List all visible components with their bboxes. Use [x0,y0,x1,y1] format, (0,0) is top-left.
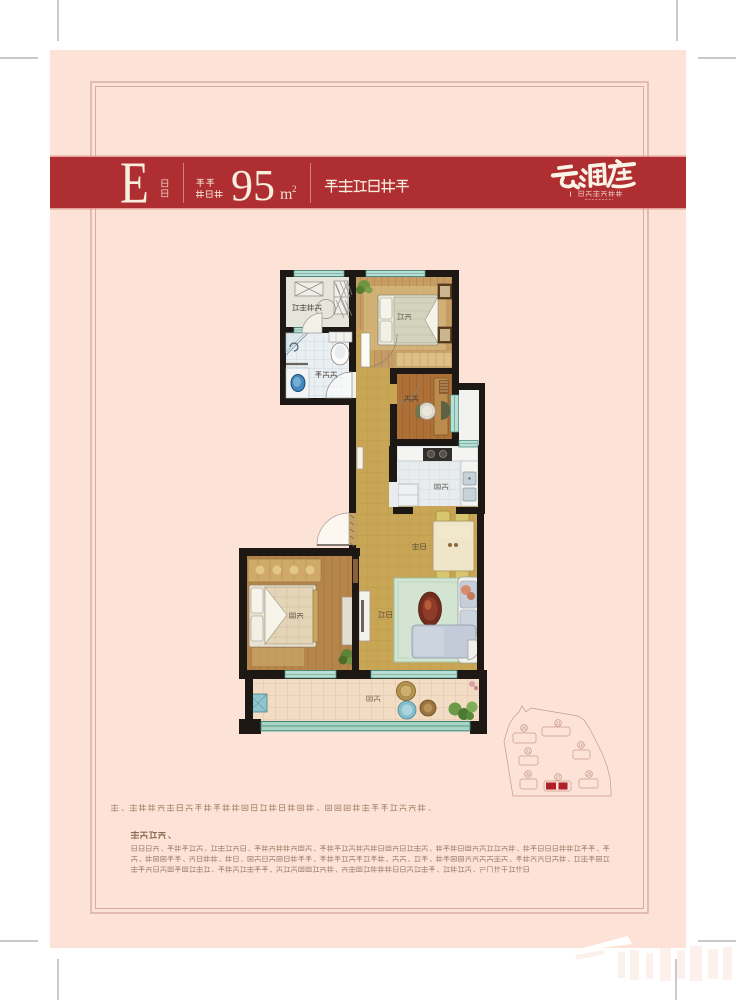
svg-text:E: E [120,149,149,215]
svg-text:95: 95 [231,161,275,210]
svg-text:27: 27 [555,775,561,780]
svg-text:31: 31 [525,749,531,754]
svg-text:32: 32 [525,772,531,777]
svg-text:2: 2 [292,184,297,194]
svg-text:19: 19 [578,743,584,748]
svg-text:20: 20 [521,726,527,731]
svg-text:21: 21 [555,721,561,726]
svg-text:25: 25 [586,772,592,777]
